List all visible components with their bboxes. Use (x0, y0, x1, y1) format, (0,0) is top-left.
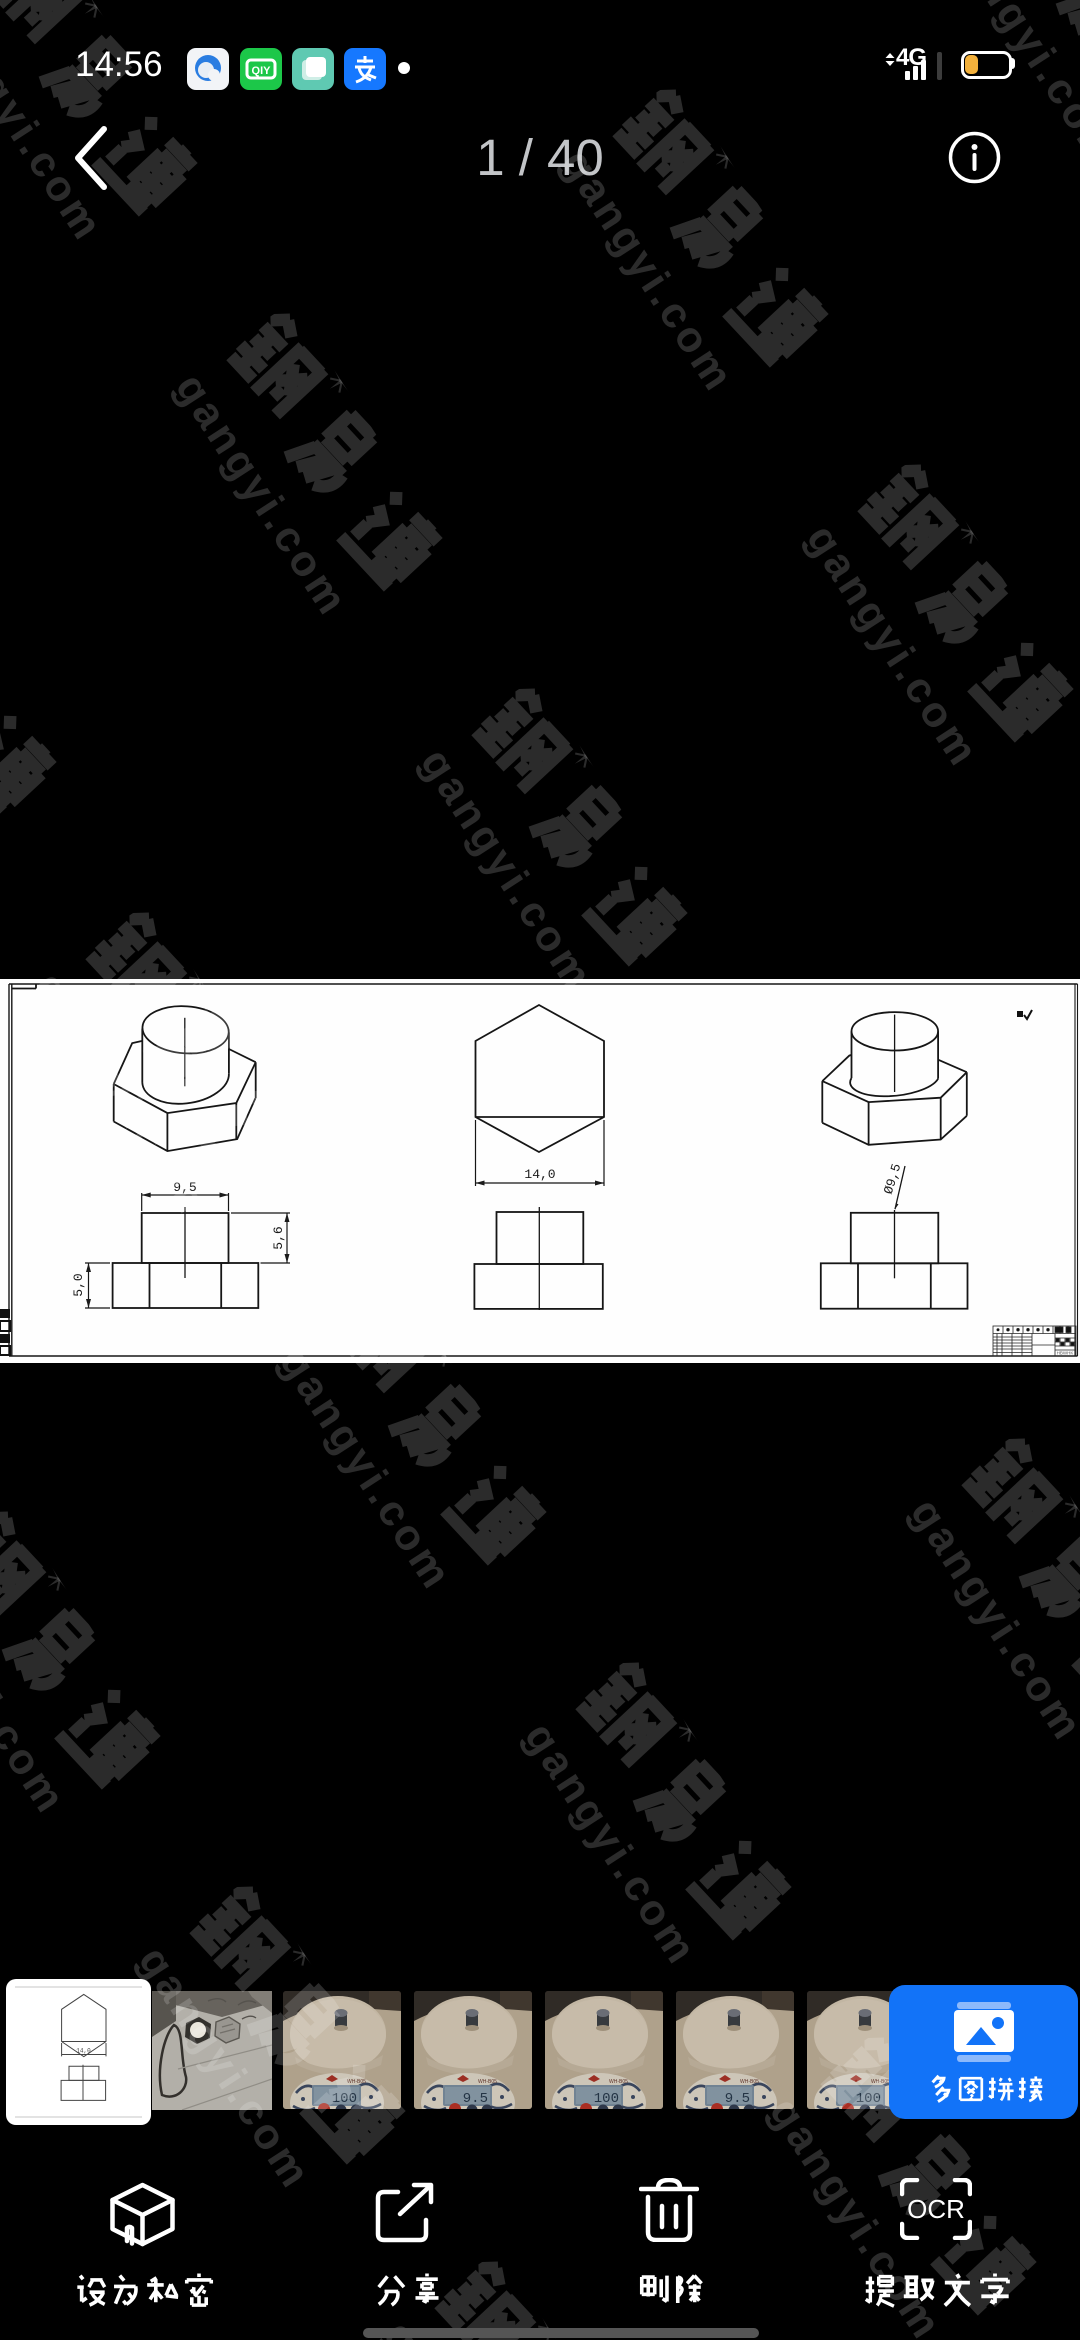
svg-text:OCR: OCR (907, 2194, 965, 2224)
